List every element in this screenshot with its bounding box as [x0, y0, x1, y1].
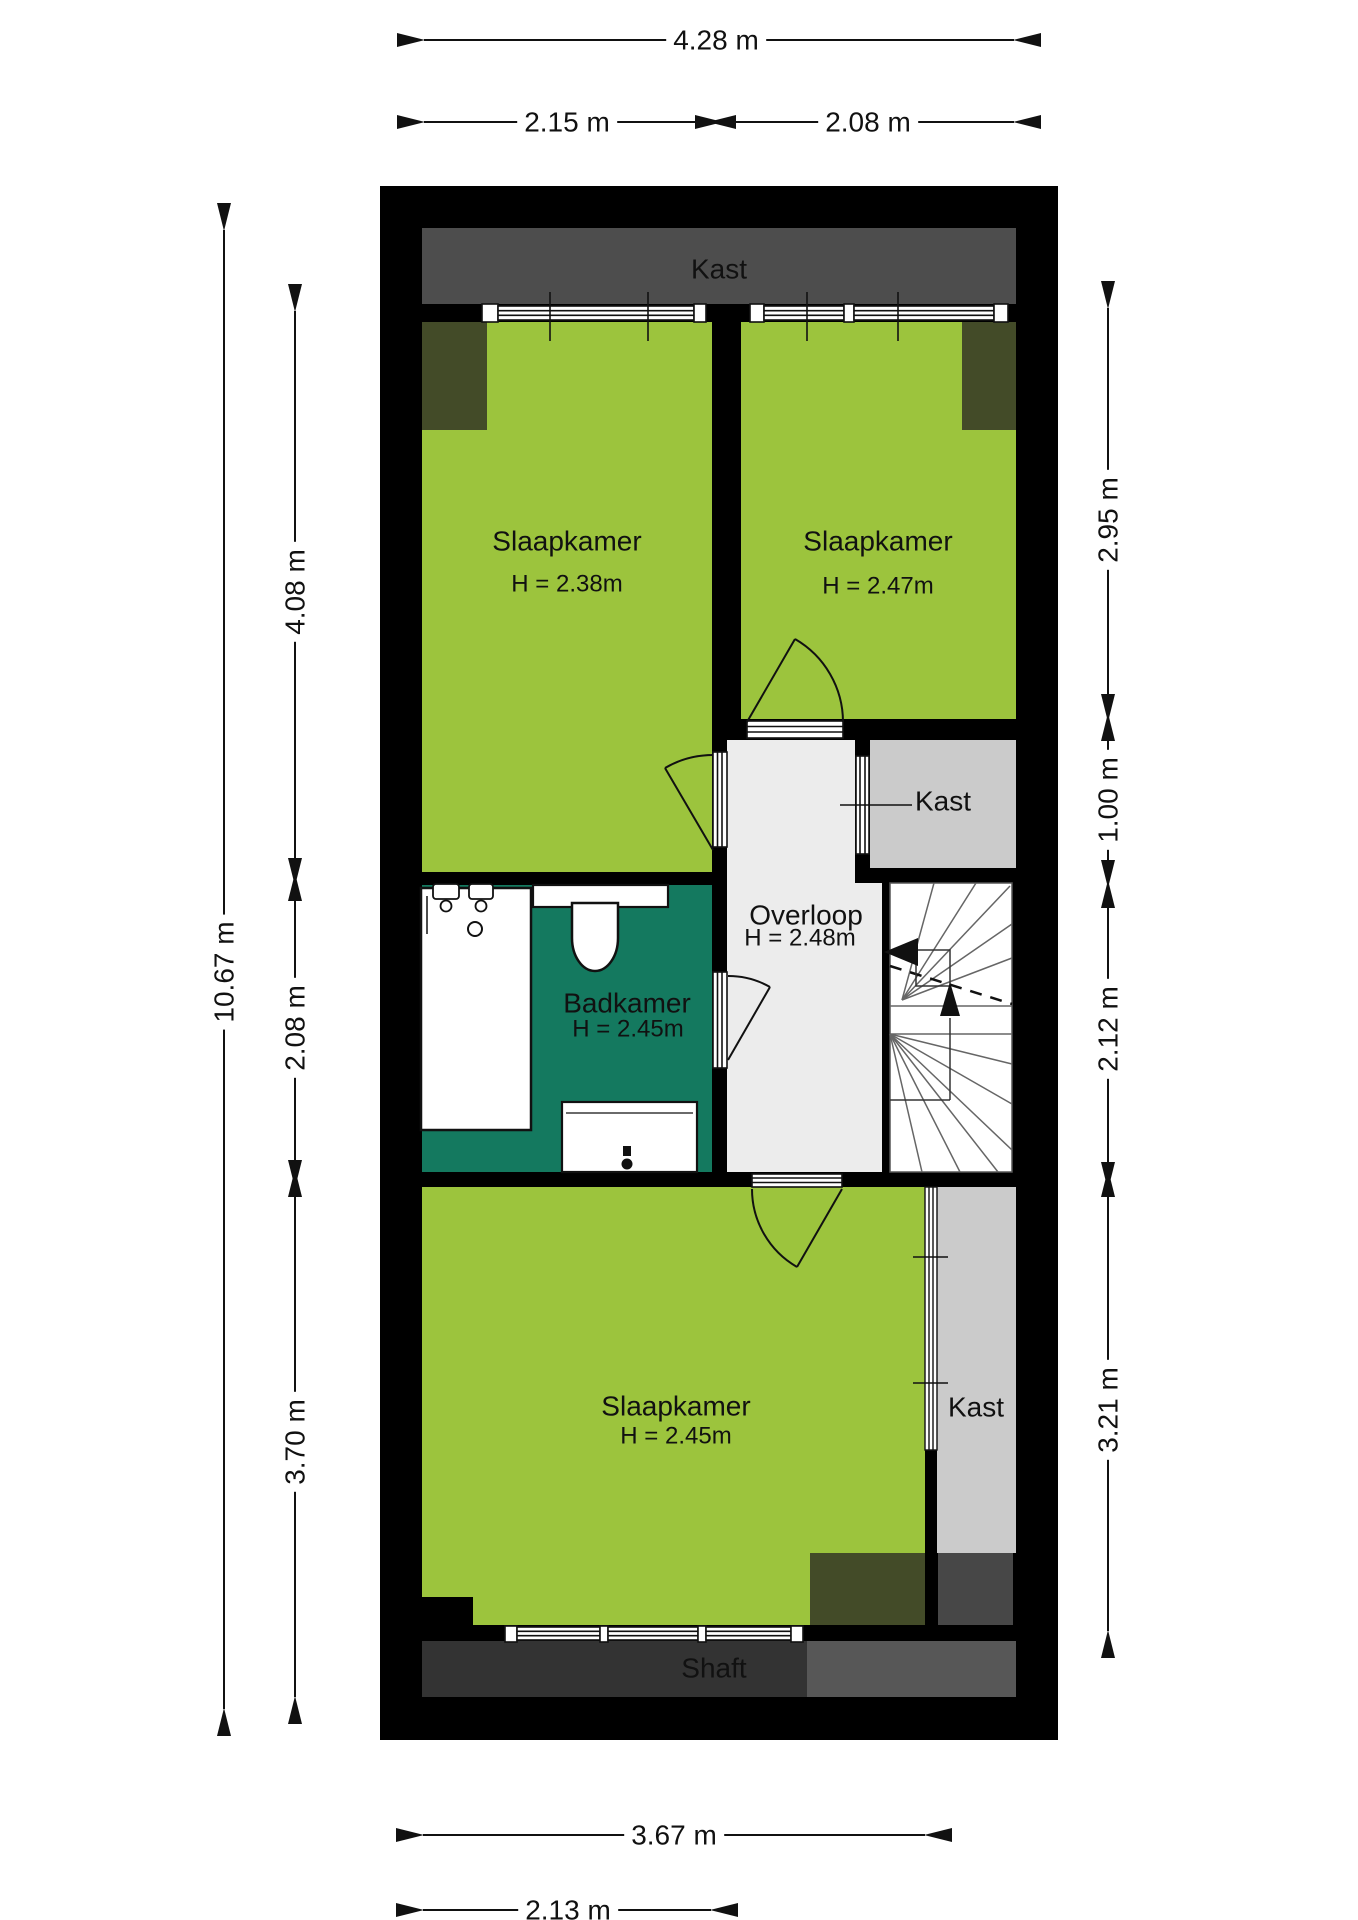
label-slaapkamer-3-height: H = 2.45m	[620, 1423, 731, 1448]
bathtub-icon	[421, 888, 531, 1130]
window-symbols-top	[482, 292, 1008, 341]
label-badkamer: Badkamer	[563, 988, 691, 1017]
dim-bottom-2: 2.13 m	[518, 1894, 618, 1920]
dim-right-3: 2.12 m	[1092, 979, 1123, 1079]
dim-right-1: 2.95 m	[1092, 470, 1123, 570]
label-badkamer-height: H = 2.45m	[572, 1016, 683, 1041]
floorplan-page: Kast Slaapkamer H = 2.38m Slaapkamer H =…	[0, 0, 1358, 1920]
dim-top-right: 2.08 m	[818, 106, 918, 137]
dim-top-left: 2.15 m	[517, 106, 617, 137]
dim-top-total: 4.28 m	[666, 24, 766, 55]
label-kast-top: Kast	[691, 254, 747, 283]
label-kast-bottom: Kast	[948, 1392, 1004, 1421]
dim-left-2: 2.08 m	[279, 978, 310, 1078]
label-overloop-height: H = 2.48m	[744, 925, 855, 950]
toilet-icon	[572, 903, 618, 971]
window-symbol-kast-mid	[840, 756, 912, 854]
dim-right-4: 3.21 m	[1092, 1360, 1123, 1460]
plan-linework	[0, 0, 1358, 1920]
label-slaapkamer-1: Slaapkamer	[492, 526, 641, 555]
dim-left-total: 10.67 m	[208, 914, 239, 1029]
label-slaapkamer-2: Slaapkamer	[803, 526, 952, 555]
window-symbol-bottom	[505, 1626, 803, 1642]
glazing-kast-bottom	[913, 1187, 948, 1450]
label-slaapkamer-1-height: H = 2.38m	[511, 571, 622, 596]
label-slaapkamer-3: Slaapkamer	[601, 1391, 750, 1420]
stairs-icon	[884, 883, 1012, 1172]
label-shaft: Shaft	[681, 1653, 746, 1682]
dim-left-3: 3.70 m	[279, 1392, 310, 1492]
label-slaapkamer-2-height: H = 2.47m	[822, 573, 933, 598]
label-kast-mid: Kast	[915, 786, 971, 815]
dim-right-2: 1.00 m	[1092, 750, 1123, 850]
dim-left-1: 4.08 m	[279, 542, 310, 642]
dim-bottom-1: 3.67 m	[624, 1819, 724, 1850]
